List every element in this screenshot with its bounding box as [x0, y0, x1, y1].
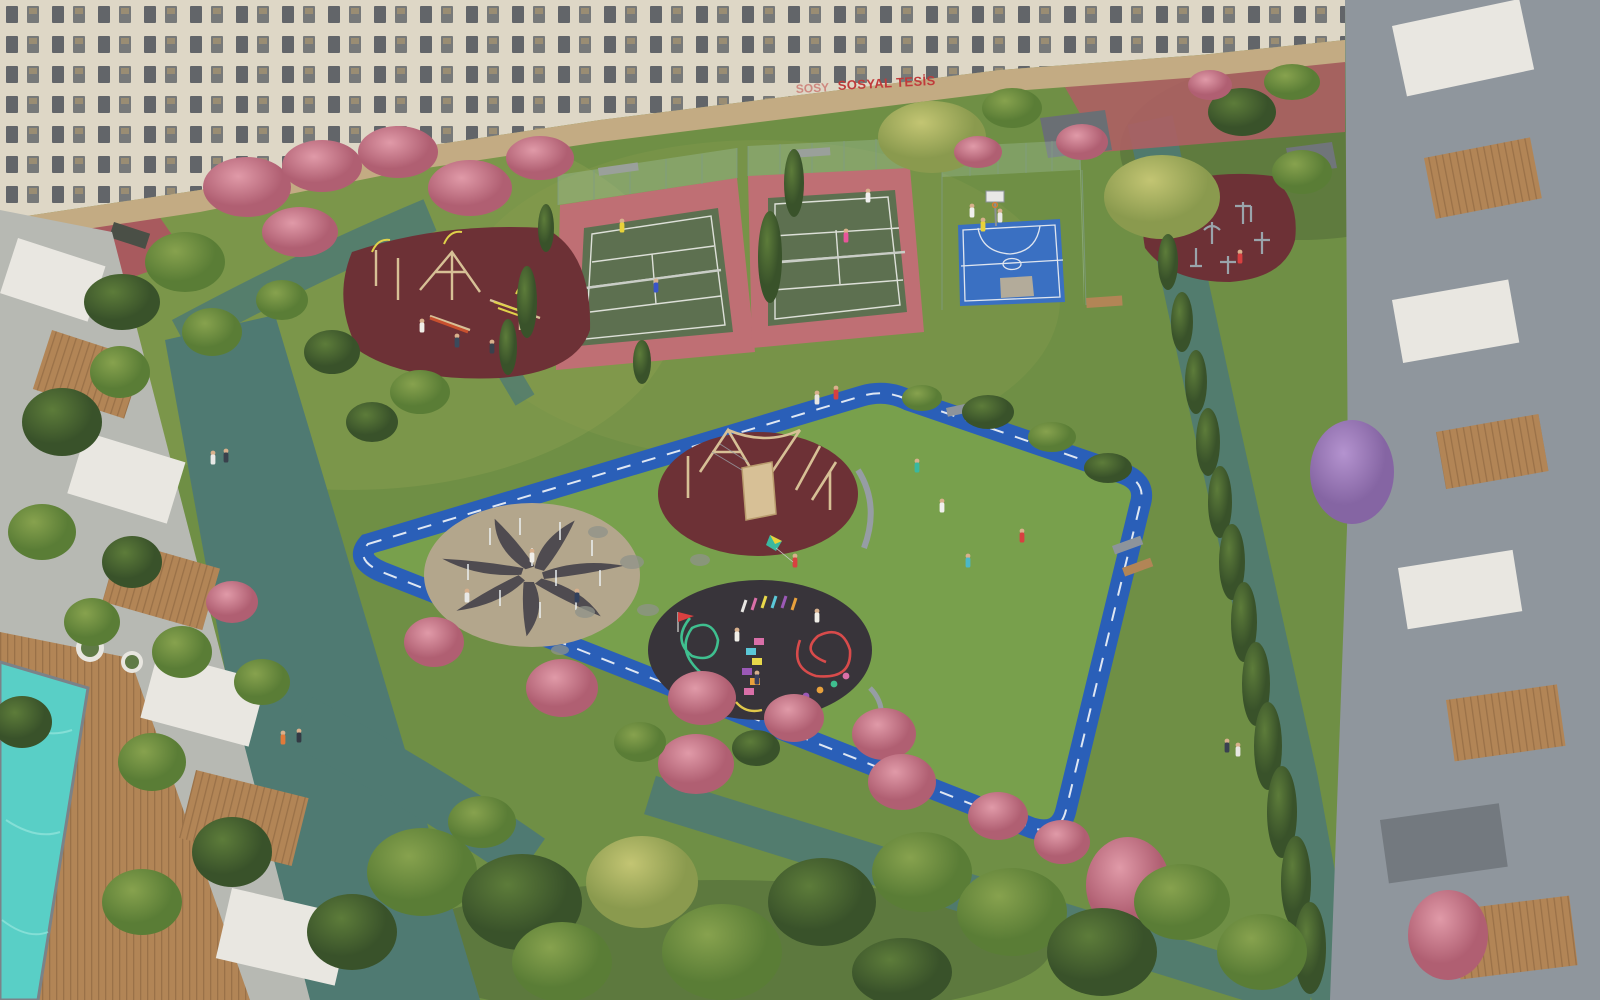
aerial-rendering: SOSY SOSYAL TESİS — [0, 0, 1600, 1000]
tennis-surface-1 — [578, 208, 733, 346]
playground-rubber — [343, 227, 590, 378]
facility-sign-partial: SOSY — [795, 80, 829, 96]
basketball-key — [1000, 276, 1034, 298]
wooden-tower — [742, 462, 776, 520]
backboard — [986, 191, 1004, 202]
courtyard-scene: SOSY SOSYAL TESİS — [0, 0, 1600, 1000]
climbing-playground — [343, 227, 590, 378]
